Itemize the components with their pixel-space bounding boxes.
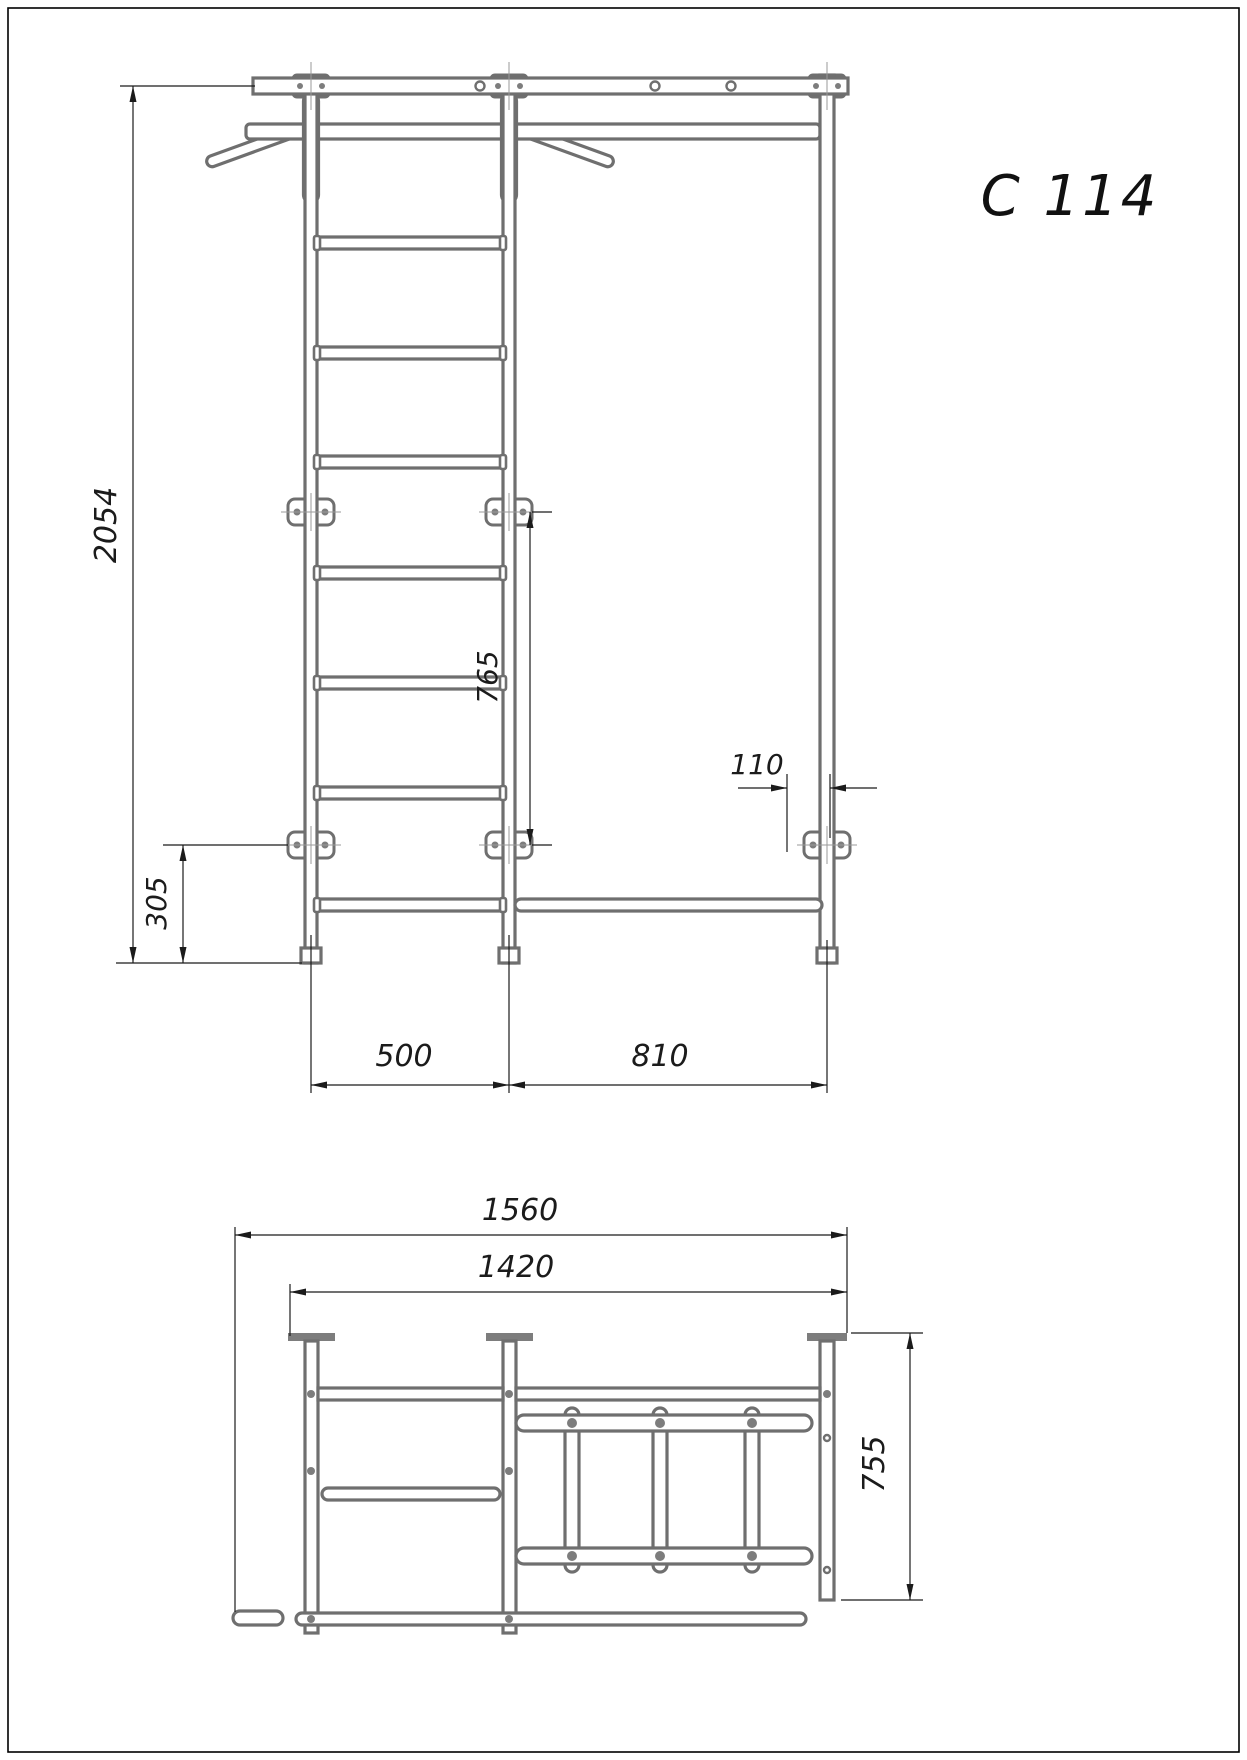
drawing-frame [8,8,1239,1752]
dim-label-765: 765 [471,650,504,703]
plan-view: 1560 1420 755 [233,1193,923,1633]
wall-bracket-row-lower [288,832,850,858]
dim-label-1560: 1560 [482,1193,558,1228]
plan-wall-plates [288,1333,847,1341]
dim-label-305: 305 [140,876,173,929]
dim-label-2054: 2054 [89,487,124,563]
dim-label-110: 110 [730,748,783,781]
dim-label-755: 755 [857,1435,892,1492]
bottom-rail [515,899,822,911]
plan-wall-rail-left [318,1388,503,1400]
drawing-sheet: 2054 305 765 110 [0,0,1247,1760]
front-elevation-view: 2054 305 765 110 [89,62,877,1093]
top-wall-rail [253,78,848,94]
pullup-hanger-posts [304,94,517,202]
plan-post-middle [503,1341,516,1633]
dim-label-1420: 1420 [478,1250,554,1285]
dim-total-height: 2054 [89,86,302,963]
post-feet [301,948,837,963]
plan-post-left [305,1341,318,1633]
plan-left-rung [322,1488,500,1500]
dim-lower-bracket-height: 305 [140,845,288,963]
model-title: C 114 [981,164,1160,229]
dim-frame-width: 1420 [290,1250,847,1336]
ladder-rungs [314,236,506,912]
drawing-canvas: 2054 305 765 110 [0,0,1247,1760]
dim-label-810: 810 [631,1039,688,1074]
dim-label-500: 500 [375,1039,432,1074]
plan-wall-rail-right [516,1388,820,1400]
plan-bottom-handle [233,1611,283,1625]
plan-bottom-bar [296,1613,806,1625]
dim-depth: 755 [841,1333,923,1600]
dim-ladder-width: 500 810 [311,935,827,1093]
plan-post-right [820,1341,834,1600]
pullup-bar [246,124,820,139]
